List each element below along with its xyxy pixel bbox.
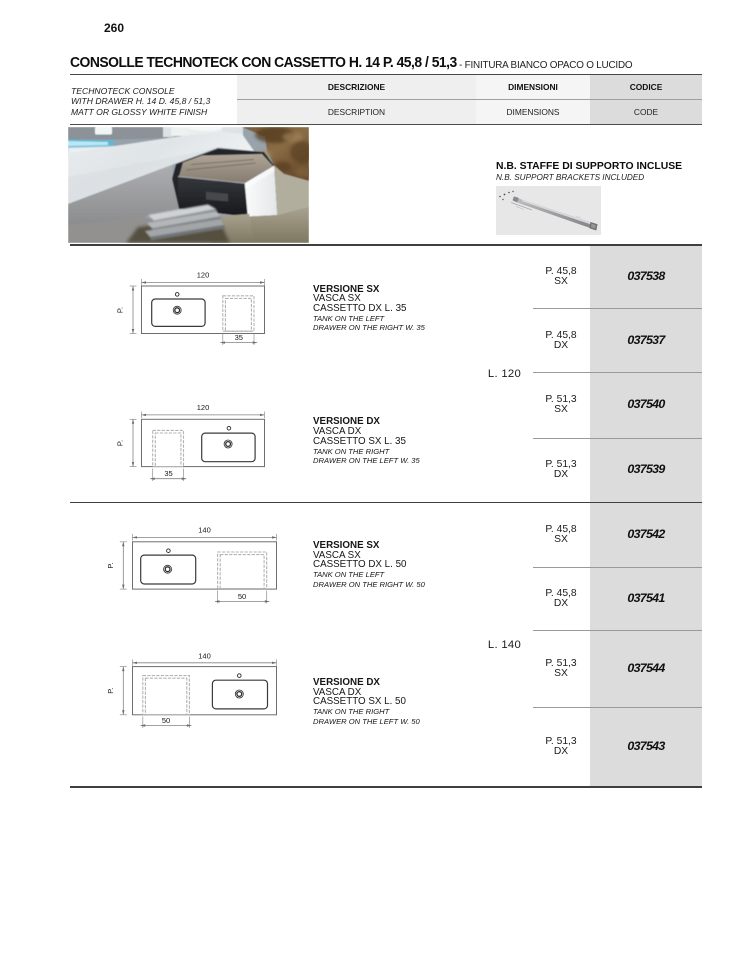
svg-text:120: 120	[197, 271, 210, 280]
svg-text:120: 120	[197, 403, 210, 412]
svg-text:P.: P.	[116, 440, 125, 446]
svg-text:50: 50	[238, 592, 246, 601]
svg-text:P.: P.	[106, 688, 115, 694]
svg-text:P.: P.	[116, 307, 125, 313]
svg-text:140: 140	[198, 652, 211, 661]
svg-text:50: 50	[162, 716, 170, 725]
svg-text:35: 35	[235, 333, 243, 342]
svg-text:35: 35	[164, 469, 172, 478]
svg-text:140: 140	[198, 526, 211, 535]
svg-text:P.: P.	[106, 562, 115, 568]
